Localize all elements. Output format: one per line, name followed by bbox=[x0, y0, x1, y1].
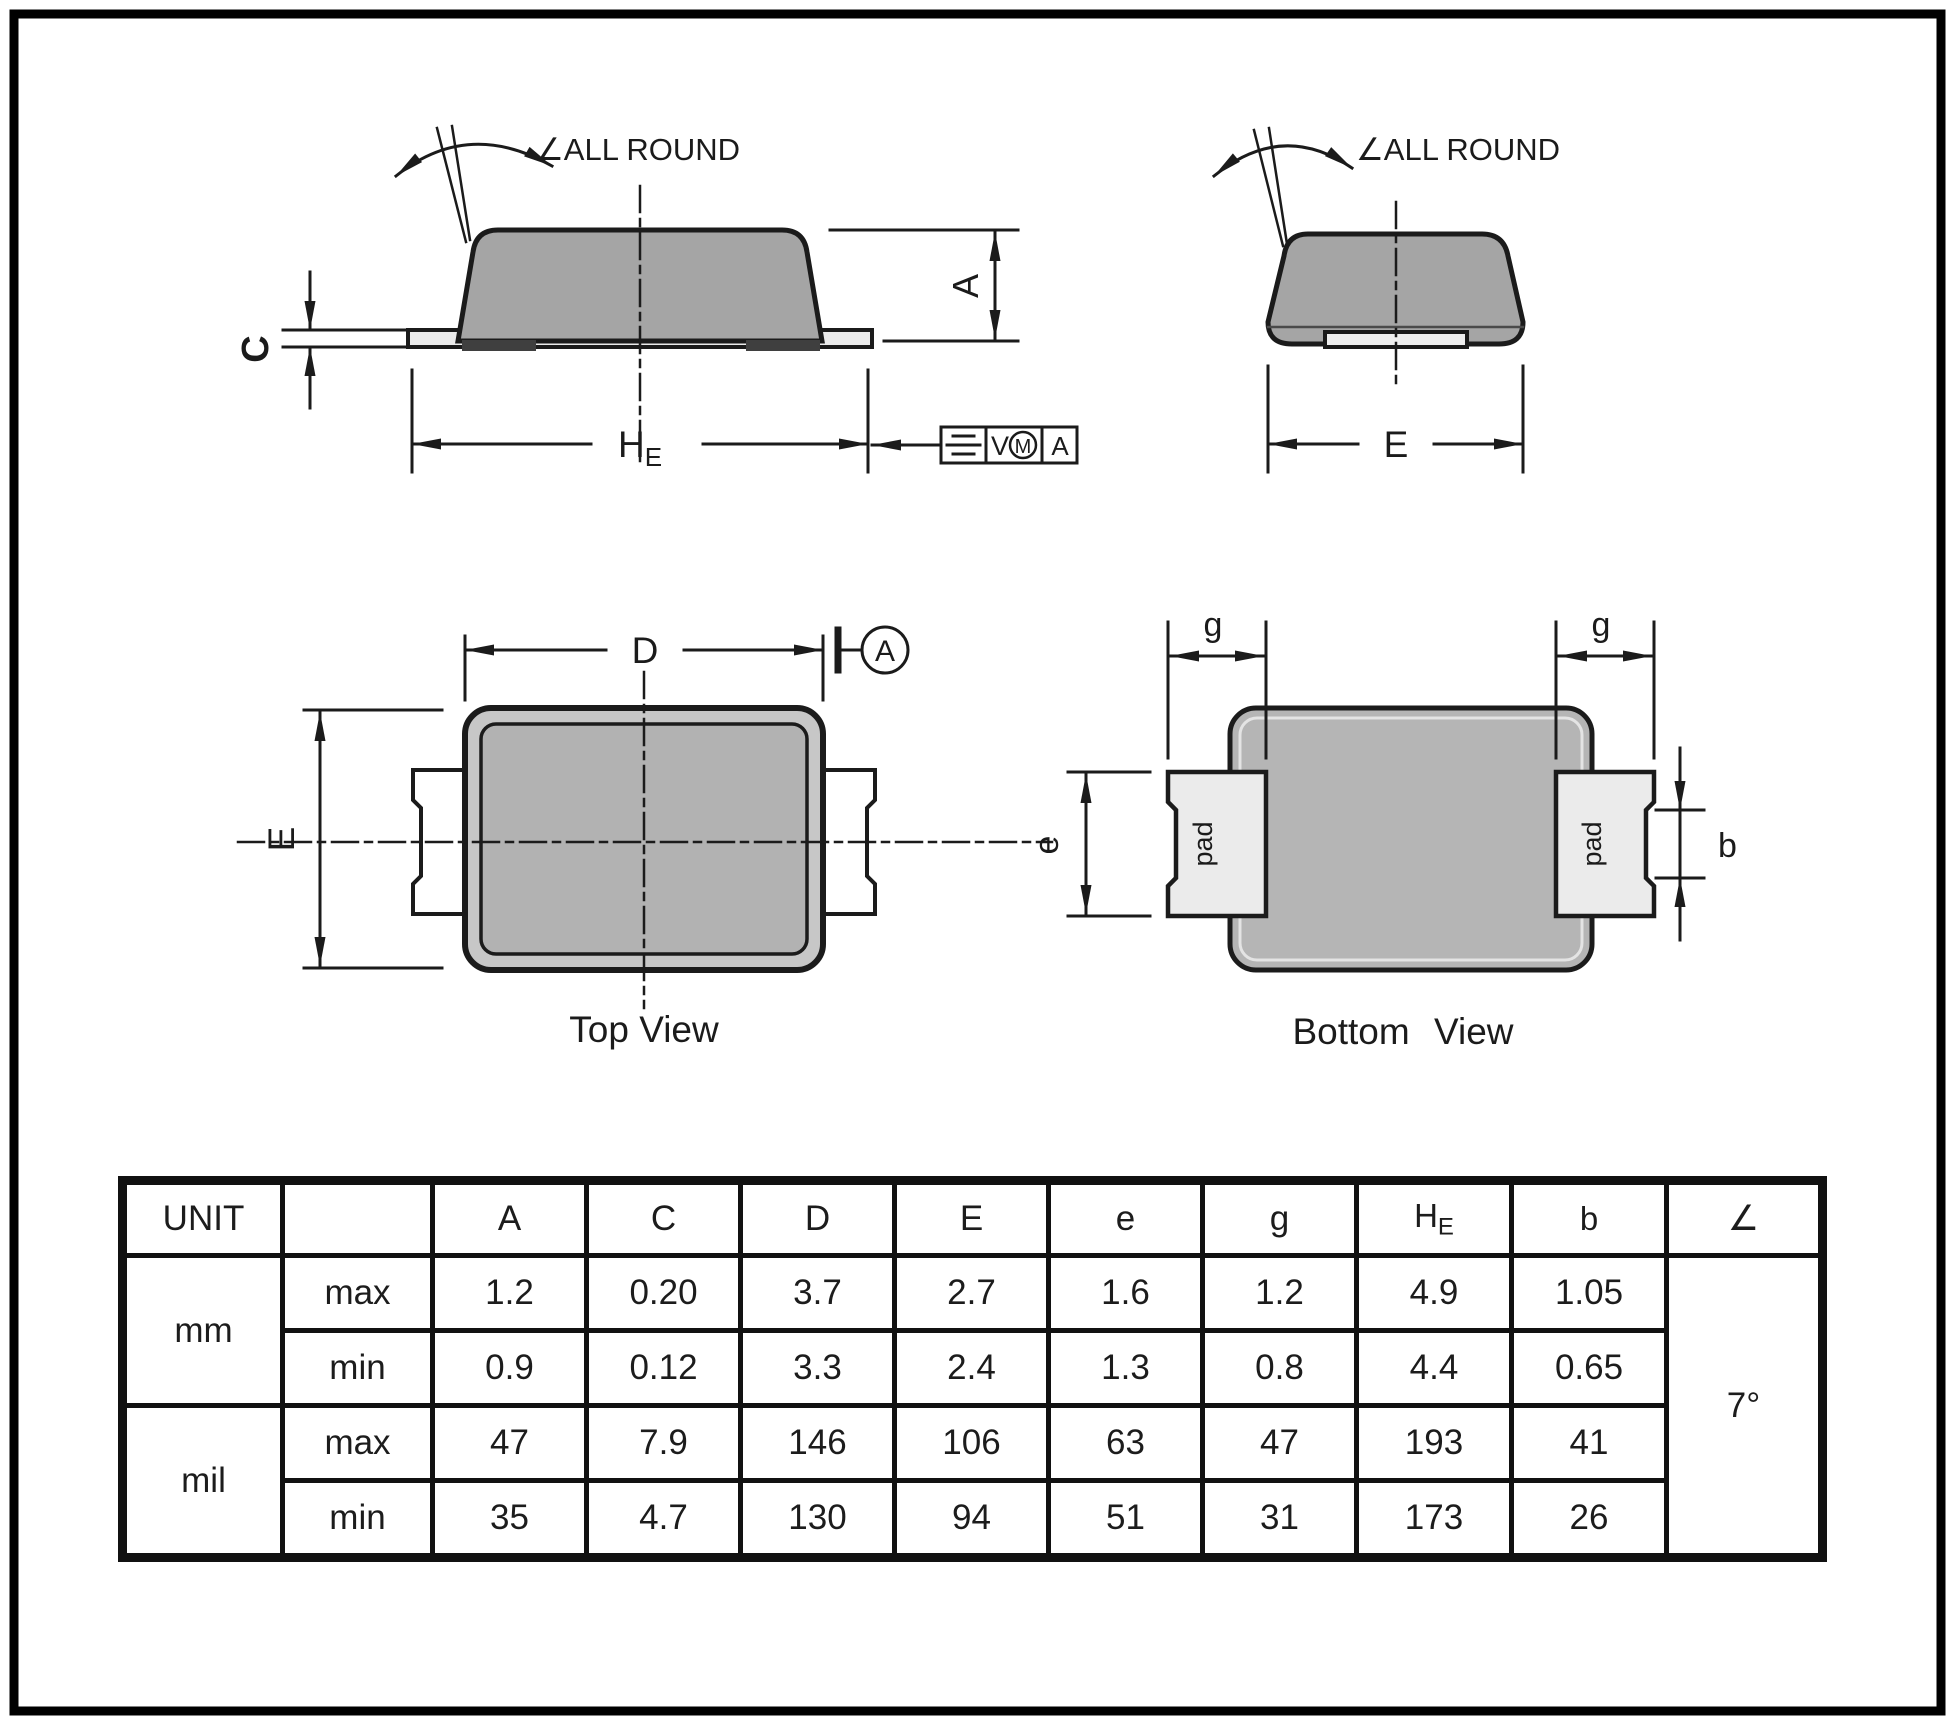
dimension-table: UNIT A C D E e g HE b ∠ mm max 1.2 0.20 … bbox=[118, 1176, 1827, 1562]
col-header-angle: ∠ bbox=[1667, 1183, 1821, 1256]
table-row-mm-max: mm max 1.2 0.20 3.7 2.7 1.6 1.2 4.9 1.05… bbox=[125, 1256, 1821, 1331]
table-cell: 51 bbox=[1049, 1481, 1203, 1556]
table-row-mil-max: mil max 47 7.9 146 106 63 47 193 41 bbox=[125, 1406, 1821, 1481]
top-view: D A E Top View bbox=[238, 627, 1052, 1050]
svg-text:A: A bbox=[875, 635, 895, 668]
table-cell: 0.8 bbox=[1203, 1331, 1357, 1406]
end-view: ∠ALL ROUND E bbox=[1214, 128, 1560, 472]
col-header-e-lower: e bbox=[1049, 1183, 1203, 1256]
dim-e-bottom bbox=[1068, 772, 1150, 916]
col-header-e-upper: E bbox=[895, 1183, 1049, 1256]
table-cell: 0.9 bbox=[433, 1331, 587, 1406]
table-cell: 63 bbox=[1049, 1406, 1203, 1481]
dim-b-label: b bbox=[1718, 827, 1737, 865]
side-view: ∠ALL ROUND C A HE bbox=[235, 126, 1077, 472]
table-cell: 173 bbox=[1357, 1481, 1512, 1556]
unit-mil-cell: mil bbox=[125, 1406, 283, 1556]
table-cell: 146 bbox=[741, 1406, 895, 1481]
dim-d-label: D bbox=[632, 630, 659, 671]
table-cell: 3.3 bbox=[741, 1331, 895, 1406]
side-all-round-label: ∠ALL ROUND bbox=[536, 132, 740, 167]
pad-left-label: pad bbox=[1188, 821, 1218, 866]
table-cell: 35 bbox=[433, 1481, 587, 1556]
dim-e-top-label: E bbox=[261, 827, 302, 852]
svg-text:M: M bbox=[1015, 436, 1032, 458]
table-cell: 1.3 bbox=[1049, 1331, 1203, 1406]
table-cell: 1.05 bbox=[1512, 1256, 1667, 1331]
dim-he-label: HE bbox=[618, 424, 662, 472]
dim-a bbox=[830, 230, 1018, 341]
angle-value-cell: 7° bbox=[1667, 1256, 1821, 1556]
pad-right-label: pad bbox=[1577, 821, 1607, 866]
table-cell: 4.9 bbox=[1357, 1256, 1512, 1331]
table-cell: 4.7 bbox=[587, 1481, 741, 1556]
table-cell: 1.2 bbox=[433, 1256, 587, 1331]
table-cell: 193 bbox=[1357, 1406, 1512, 1481]
bound-cell: min bbox=[283, 1481, 433, 1556]
col-header-b: b bbox=[1512, 1183, 1667, 1256]
fcf-value-label: V bbox=[991, 431, 1009, 461]
bound-cell: max bbox=[283, 1406, 433, 1481]
dim-a-label: A bbox=[945, 274, 986, 298]
table-cell: 0.20 bbox=[587, 1256, 741, 1331]
side-view-foot-left bbox=[462, 340, 536, 351]
dim-g-left-label: g bbox=[1204, 606, 1223, 644]
table-cell: 7.9 bbox=[587, 1406, 741, 1481]
dim-g-right-label: g bbox=[1592, 606, 1611, 644]
side-view-foot-right bbox=[746, 340, 820, 351]
bottom-view: pad pad g g e b bbox=[1028, 606, 1737, 1052]
dimension-table-grid: UNIT A C D E e g HE b ∠ mm max 1.2 0.20 … bbox=[122, 1180, 1823, 1558]
feature-control-frame: V M A bbox=[872, 427, 1077, 463]
col-header-g: g bbox=[1203, 1183, 1357, 1256]
table-cell: 2.7 bbox=[895, 1256, 1049, 1331]
table-cell: 0.65 bbox=[1512, 1331, 1667, 1406]
table-cell: 31 bbox=[1203, 1481, 1357, 1556]
dim-e-end-label: E bbox=[1384, 424, 1409, 465]
table-cell: 1.6 bbox=[1049, 1256, 1203, 1331]
col-header-a: A bbox=[433, 1183, 587, 1256]
unit-header-cell: UNIT bbox=[125, 1183, 283, 1256]
datum-a-symbol: A bbox=[838, 627, 908, 673]
table-cell: 0.12 bbox=[587, 1331, 741, 1406]
top-view-caption: Top View bbox=[569, 1009, 719, 1050]
table-row-mil-min: min 35 4.7 130 94 51 31 173 26 bbox=[125, 1481, 1821, 1556]
bottom-view-body bbox=[1230, 708, 1592, 970]
table-header-row: UNIT A C D E e g HE b ∠ bbox=[125, 1183, 1821, 1256]
table-cell: 130 bbox=[741, 1481, 895, 1556]
table-row-mm-min: min 0.9 0.12 3.3 2.4 1.3 0.8 4.4 0.65 bbox=[125, 1331, 1821, 1406]
table-cell: 1.2 bbox=[1203, 1256, 1357, 1331]
table-cell: 47 bbox=[433, 1406, 587, 1481]
dim-c-label: C bbox=[235, 335, 277, 362]
table-cell: 3.7 bbox=[741, 1256, 895, 1331]
col-header-he: HE bbox=[1357, 1183, 1512, 1256]
bound-cell: max bbox=[283, 1256, 433, 1331]
end-all-round-label: ∠ALL ROUND bbox=[1356, 132, 1560, 167]
bottom-view-caption: Bottom View bbox=[1292, 1011, 1513, 1052]
table-cell: 106 bbox=[895, 1406, 1049, 1481]
unit-mm-cell: mm bbox=[125, 1256, 283, 1406]
drawing-sheet: ∠ALL ROUND C A HE bbox=[0, 0, 1955, 1725]
table-cell: 47 bbox=[1203, 1406, 1357, 1481]
col-header-d: D bbox=[741, 1183, 895, 1256]
angle-arc-icon bbox=[396, 144, 552, 176]
col-header-c: C bbox=[587, 1183, 741, 1256]
dim-b bbox=[1656, 748, 1704, 940]
bound-cell: min bbox=[283, 1331, 433, 1406]
fcf-datum-label: A bbox=[1051, 431, 1069, 461]
dim-e-bottom-label: e bbox=[1028, 836, 1066, 855]
table-cell: 4.4 bbox=[1357, 1331, 1512, 1406]
bound-header-cell bbox=[283, 1183, 433, 1256]
dim-c bbox=[283, 272, 408, 408]
table-cell: 94 bbox=[895, 1481, 1049, 1556]
table-cell: 41 bbox=[1512, 1406, 1667, 1481]
angle-arc-icon bbox=[1214, 146, 1352, 176]
table-cell: 26 bbox=[1512, 1481, 1667, 1556]
table-cell: 2.4 bbox=[895, 1331, 1049, 1406]
